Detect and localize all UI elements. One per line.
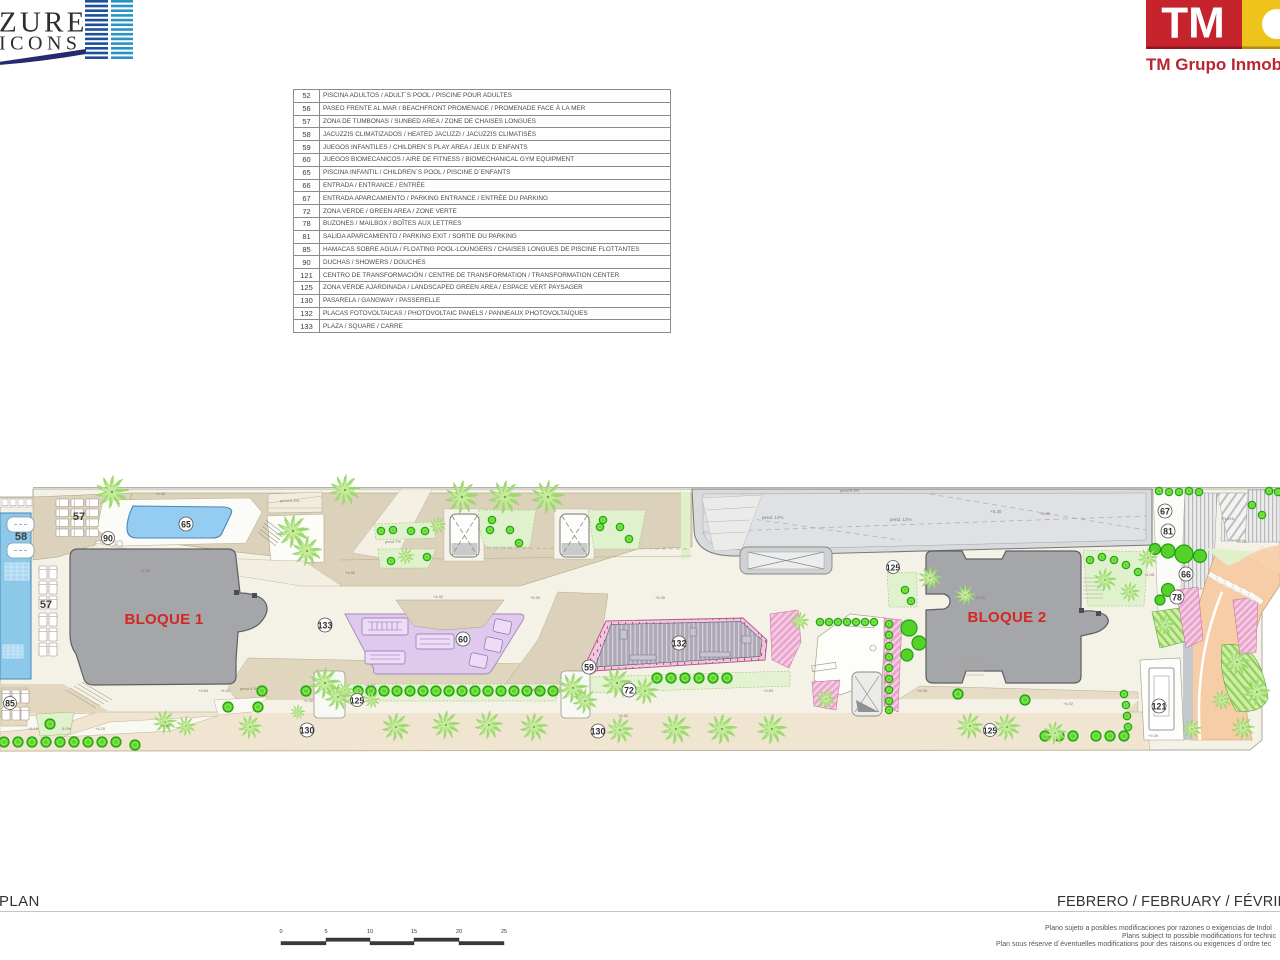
svg-text:+4.30: +4.30 bbox=[140, 568, 151, 573]
svg-text:+4.32: +4.32 bbox=[365, 683, 376, 688]
svg-text:+4.30: +4.30 bbox=[155, 491, 166, 496]
svg-text:+9.26: +9.26 bbox=[1236, 539, 1247, 544]
svg-text:133: 133 bbox=[318, 621, 333, 631]
svg-text:67: 67 bbox=[1160, 507, 1170, 517]
svg-text:pend. 12%: pend. 12% bbox=[890, 517, 912, 522]
svg-text:+4.82: +4.82 bbox=[530, 687, 541, 692]
svg-text:+5.30: +5.30 bbox=[975, 595, 986, 600]
svg-text:+4.60: +4.60 bbox=[198, 688, 209, 693]
svg-text:57: 57 bbox=[40, 599, 52, 611]
svg-text:15: 15 bbox=[411, 929, 417, 935]
svg-text:PLAYA: PLAYA bbox=[1222, 516, 1235, 521]
svg-text:+5.30: +5.30 bbox=[530, 595, 541, 600]
svg-text:58: 58 bbox=[15, 531, 27, 543]
svg-text:+4.30: +4.30 bbox=[303, 698, 314, 703]
svg-text:+5.30: +5.30 bbox=[917, 688, 928, 693]
svg-text:10: 10 bbox=[367, 929, 373, 935]
svg-text:72: 72 bbox=[624, 686, 634, 696]
svg-text:pend. 12%: pend. 12% bbox=[762, 515, 784, 520]
svg-text:81: 81 bbox=[1163, 527, 1173, 537]
svg-text:0: 0 bbox=[279, 929, 282, 935]
svg-text:+5.30: +5.30 bbox=[655, 595, 666, 600]
svg-text:25: 25 bbox=[501, 929, 507, 935]
svg-text:66: 66 bbox=[1181, 570, 1191, 580]
svg-text:5.0%: 5.0% bbox=[62, 726, 72, 731]
svg-text:130: 130 bbox=[300, 726, 315, 736]
svg-text:+4.30: +4.30 bbox=[345, 570, 356, 575]
svg-text:65: 65 bbox=[181, 520, 191, 530]
svg-text:+5.30: +5.30 bbox=[1040, 511, 1051, 516]
svg-text:+9.26: +9.26 bbox=[1148, 733, 1159, 738]
svg-text:BLOQUE 2: BLOQUE 2 bbox=[967, 609, 1046, 626]
svg-text:pend 6.9%: pend 6.9% bbox=[280, 498, 300, 503]
svg-text:+4.92: +4.92 bbox=[1063, 701, 1074, 706]
svg-text:pend 4.3%: pend 4.3% bbox=[240, 686, 260, 691]
svg-text:20: 20 bbox=[456, 929, 462, 935]
svg-text:57: 57 bbox=[73, 511, 85, 523]
svg-text:+1.05: +1.05 bbox=[1144, 572, 1155, 577]
svg-text:pend 7%: pend 7% bbox=[385, 539, 401, 544]
svg-text:+4.02: +4.02 bbox=[220, 688, 231, 693]
svg-text:+4.80: +4.80 bbox=[160, 723, 171, 728]
svg-text:+4.30: +4.30 bbox=[433, 594, 444, 599]
svg-text:60: 60 bbox=[458, 635, 468, 645]
svg-text:125: 125 bbox=[886, 563, 900, 573]
svg-text:130: 130 bbox=[591, 727, 606, 737]
svg-text:+5.30: +5.30 bbox=[990, 509, 1002, 514]
svg-text:125: 125 bbox=[983, 726, 997, 736]
svg-text:90: 90 bbox=[103, 534, 113, 544]
svg-text:+4.60: +4.60 bbox=[618, 713, 629, 718]
svg-text:5: 5 bbox=[324, 929, 327, 935]
svg-text:+4.10: +4.10 bbox=[28, 726, 39, 731]
svg-text:78: 78 bbox=[1172, 593, 1182, 603]
svg-text:85: 85 bbox=[5, 699, 15, 709]
svg-text:132: 132 bbox=[672, 639, 687, 649]
svg-text:125: 125 bbox=[350, 696, 364, 706]
svg-text:+4.60: +4.60 bbox=[763, 688, 774, 693]
svg-text:BLOQUE 1: BLOQUE 1 bbox=[124, 611, 203, 628]
svg-text:121: 121 bbox=[1152, 702, 1167, 712]
svg-text:59: 59 bbox=[584, 663, 594, 673]
svg-text:+4.20: +4.20 bbox=[95, 726, 106, 731]
svg-text:pend 6.9%: pend 6.9% bbox=[840, 488, 860, 493]
